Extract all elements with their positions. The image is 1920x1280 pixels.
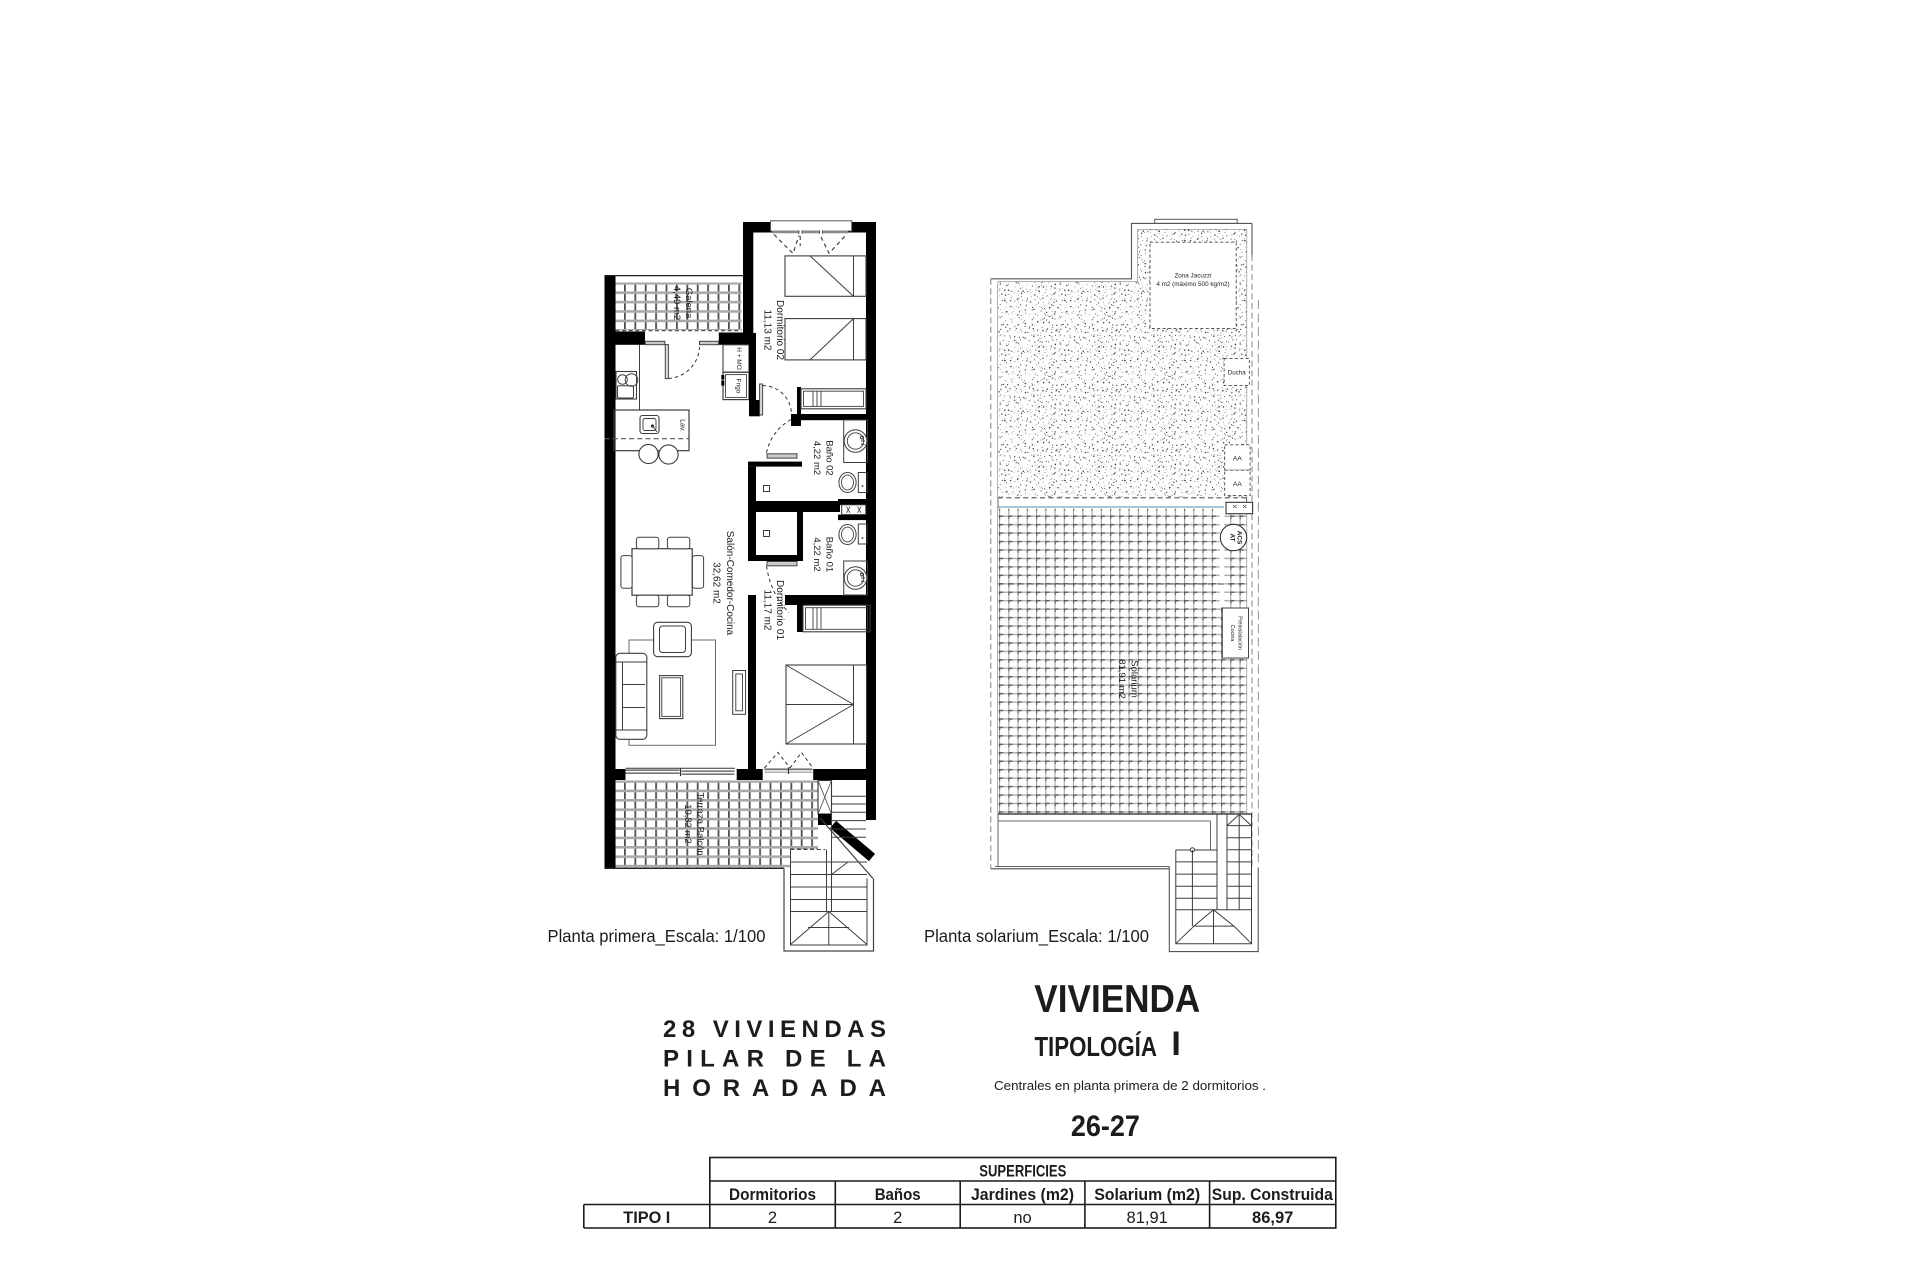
svg-text:Planta primera_Escala: 1/100: Planta primera_Escala: 1/100: [548, 926, 766, 947]
svg-text:SUPERFICIES: SUPERFICIES: [979, 1163, 1066, 1181]
svg-text:32,62 m2: 32,62 m2: [711, 562, 722, 604]
svg-text:81,91: 81,91: [1127, 1209, 1168, 1227]
svg-text:Ducha: Ducha: [1228, 370, 1246, 377]
svg-text:10,82 m2: 10,82 m2: [682, 804, 693, 844]
svg-text:I: I: [1171, 1025, 1180, 1063]
svg-text:4 m2 (máximo 500 kg/m2): 4 m2 (máximo 500 kg/m2): [1156, 281, 1229, 288]
svg-text:AA: AA: [1233, 481, 1242, 488]
svg-text:Solarium: Solarium: [1129, 660, 1140, 698]
svg-text:Zona Jacuzzi: Zona Jacuzzi: [1174, 273, 1211, 280]
svg-text:Centrales en planta primera de: Centrales en planta primera de 2 dormito…: [994, 1078, 1266, 1093]
svg-text:ACS: ACS: [1236, 531, 1243, 545]
svg-text:11,17 m2: 11,17 m2: [762, 590, 773, 631]
svg-text:AA: AA: [1233, 456, 1242, 463]
svg-text:H + MO: H + MO: [735, 347, 742, 370]
svg-text:Cocina: Cocina: [1229, 625, 1235, 642]
svg-text:26-27: 26-27: [1071, 1110, 1140, 1143]
svg-text:2: 2: [893, 1209, 902, 1227]
svg-text:4,49 m2: 4,49 m2: [671, 286, 682, 320]
svg-text:Dormitorio 02: Dormitorio 02: [774, 300, 785, 360]
svg-text:Dormitorio 01: Dormitorio 01: [774, 580, 785, 640]
svg-text:Baño 02: Baño 02: [824, 440, 835, 475]
svg-text:11,13 m2: 11,13 m2: [762, 310, 773, 351]
svg-text:TIPOLOGÍA: TIPOLOGÍA: [1034, 1031, 1157, 1062]
svg-text:VIVIENDA: VIVIENDA: [1034, 978, 1200, 1021]
svg-text:2: 2: [768, 1209, 777, 1227]
svg-text:4,22 m2: 4,22 m2: [811, 441, 822, 475]
svg-text:Dormitorios: Dormitorios: [729, 1186, 816, 1204]
svg-text:Planta solarium_Escala: 1/100: Planta solarium_Escala: 1/100: [924, 926, 1149, 947]
svg-text:Preinstalación: Preinstalación: [1237, 616, 1243, 650]
svg-text:Terraza Balcón: Terraza Balcón: [695, 792, 706, 855]
svg-text:Salón-Comedor-Cocina: Salón-Comedor-Cocina: [724, 531, 735, 636]
svg-text:Jardines (m2): Jardines (m2): [971, 1186, 1074, 1204]
svg-text:Baño 01: Baño 01: [824, 537, 835, 572]
svg-text:86,97: 86,97: [1252, 1209, 1293, 1227]
svg-text:Sup. Construida: Sup. Construida: [1212, 1186, 1334, 1204]
svg-text:Frigo: Frigo: [735, 378, 742, 393]
svg-text:TIPO I: TIPO I: [623, 1209, 670, 1227]
svg-text:Baños: Baños: [875, 1186, 921, 1204]
svg-text:Solarium (m2): Solarium (m2): [1094, 1186, 1200, 1204]
svg-text:Lav.: Lav.: [679, 419, 686, 432]
svg-text:4,22 m2: 4,22 m2: [811, 537, 822, 571]
svg-text:no: no: [1013, 1209, 1031, 1227]
svg-text:AT: AT: [1229, 533, 1236, 541]
svg-text:Galeria: Galeria: [683, 288, 694, 319]
svg-text:81,91 m2: 81,91 m2: [1116, 659, 1127, 699]
